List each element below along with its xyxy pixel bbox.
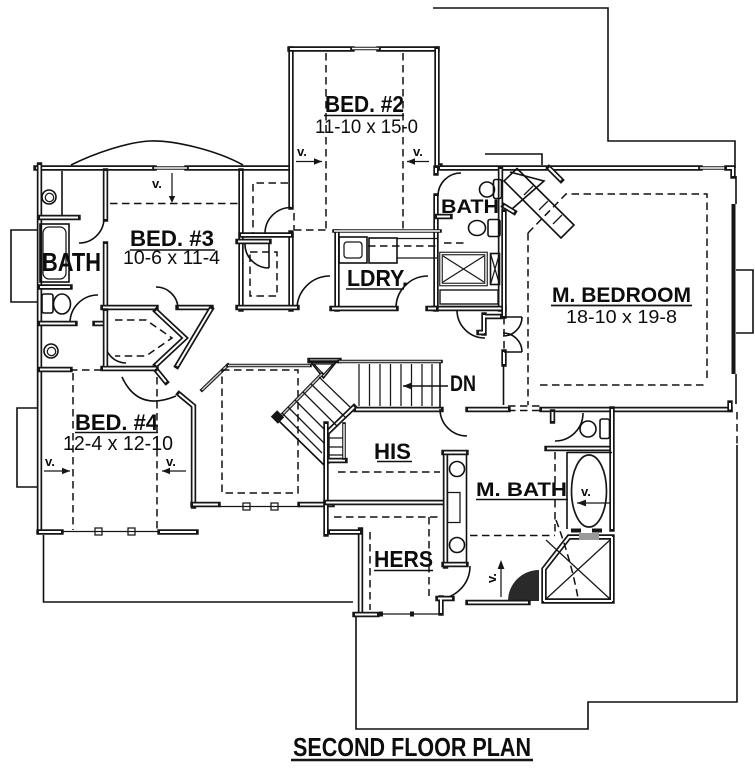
svg-text:v.: v.: [166, 454, 176, 469]
svg-text:BED. #2: BED. #2: [325, 91, 404, 117]
svg-text:SECOND FLOOR PLAN: SECOND FLOOR PLAN: [293, 732, 531, 762]
svg-text:M. BATH: M. BATH: [476, 479, 567, 501]
svg-text:v.: v.: [484, 573, 499, 583]
svg-text:10-6 x 11-4: 10-6 x 11-4: [123, 248, 220, 269]
svg-text:v.: v.: [413, 144, 423, 159]
svg-text:v.: v.: [45, 454, 55, 469]
svg-text:v.: v.: [581, 484, 591, 499]
svg-text:BED. #4: BED. #4: [75, 410, 158, 435]
svg-text:M. BEDROOM: M. BEDROOM: [552, 283, 691, 307]
svg-text:DN: DN: [450, 371, 476, 396]
svg-text:HERS: HERS: [374, 546, 433, 572]
svg-text:LDRY.: LDRY.: [347, 265, 408, 291]
svg-text:BATH: BATH: [42, 247, 101, 277]
svg-text:v.: v.: [152, 176, 162, 191]
svg-text:18-10 x 19-8: 18-10 x 19-8: [566, 307, 677, 327]
svg-text:v.: v.: [297, 144, 307, 159]
svg-text:HIS: HIS: [374, 439, 411, 464]
